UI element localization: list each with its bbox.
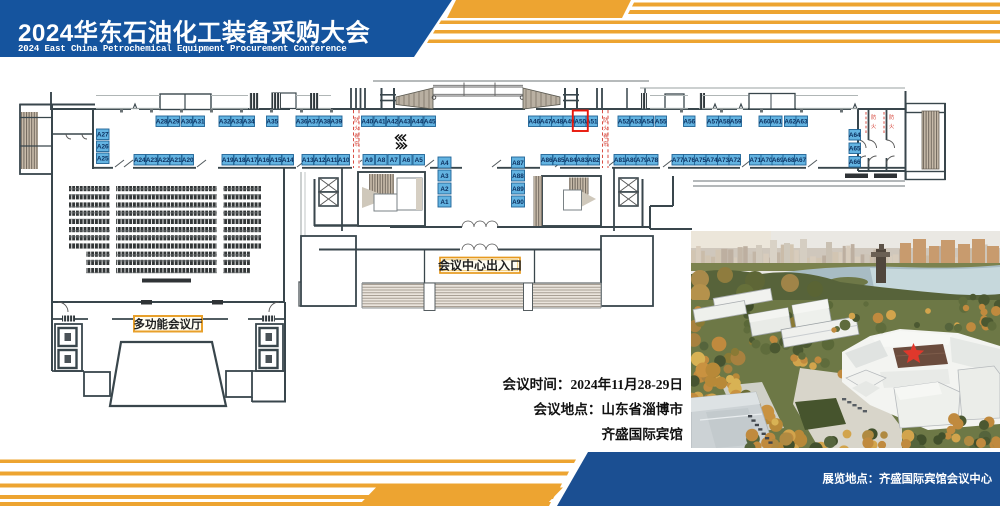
svg-text:A16: A16 [258,157,270,164]
svg-text:A48: A48 [551,119,563,126]
svg-text:A17: A17 [246,157,258,164]
svg-text:A25: A25 [97,156,109,163]
svg-text:A33: A33 [231,119,243,126]
svg-text:A1: A1 [440,199,449,206]
svg-text:A78: A78 [646,157,658,164]
svg-text:A62: A62 [784,119,796,126]
svg-text:会议中心出入口: 会议中心出入口 [438,258,522,273]
svg-text:A65: A65 [849,146,861,153]
svg-text:卷: 卷 [603,132,609,140]
svg-text:A72: A72 [729,157,741,164]
svg-text:A21: A21 [170,157,182,164]
svg-text:防: 防 [889,113,894,121]
svg-text:A12: A12 [314,157,326,164]
svg-text:A26: A26 [97,144,109,151]
svg-text:A60: A60 [759,119,771,126]
svg-text:多功能会议厅: 多功能会议厅 [134,317,203,331]
svg-text:A87: A87 [512,160,524,167]
svg-text:A90: A90 [512,199,524,206]
svg-text:A77: A77 [672,157,684,164]
svg-text:A54: A54 [642,119,654,126]
svg-text:火: 火 [603,126,609,132]
svg-text:A29: A29 [168,119,180,126]
svg-text:A8: A8 [377,157,386,164]
svg-text:A45: A45 [424,119,436,126]
svg-text:帘: 帘 [354,140,359,148]
svg-text:A64: A64 [849,132,861,139]
svg-text:防: 防 [603,116,609,124]
svg-text:展览地点：齐盛国际宾馆会议中心: 展览地点：齐盛国际宾馆会议中心 [822,472,993,486]
svg-text:A89: A89 [512,186,524,193]
svg-text:A9: A9 [365,157,374,164]
svg-text:A30: A30 [181,119,193,126]
svg-text:A22: A22 [158,157,170,164]
svg-text:A10: A10 [338,157,350,164]
svg-text:A34: A34 [243,119,255,126]
svg-text:防: 防 [871,113,876,121]
svg-text:A4: A4 [440,160,449,167]
svg-text:A27: A27 [97,132,109,139]
svg-text:会议地点：山东省淄博市: 会议地点：山东省淄博市 [533,401,683,417]
svg-text:A58: A58 [718,119,730,126]
svg-text:A73: A73 [717,157,729,164]
svg-text:A56: A56 [683,119,695,126]
svg-text:A35: A35 [266,119,278,126]
svg-text:帘: 帘 [603,140,608,148]
svg-text:A23: A23 [146,157,158,164]
svg-text:A40: A40 [361,119,373,126]
svg-text:A50: A50 [574,119,586,126]
svg-text:A44: A44 [411,119,423,126]
svg-text:A2: A2 [440,186,449,193]
svg-text:A63: A63 [796,119,808,126]
svg-text:A11: A11 [326,157,338,164]
svg-text:A31: A31 [193,119,205,126]
svg-text:A85: A85 [553,157,565,164]
svg-text:A18: A18 [234,157,246,164]
svg-text:A7: A7 [390,157,399,164]
svg-text:会议时间：2024年11月28-29日: 会议时间：2024年11月28-29日 [503,376,684,392]
svg-text:A55: A55 [655,119,667,126]
svg-text:A41: A41 [374,119,386,126]
svg-text:A5: A5 [415,157,424,164]
svg-text:防: 防 [354,116,360,124]
svg-text:A83: A83 [576,157,588,164]
svg-text:A84: A84 [565,157,577,164]
svg-text:A47: A47 [540,119,552,126]
svg-text:A28: A28 [156,119,168,126]
svg-text:A15: A15 [270,157,282,164]
svg-text:A3: A3 [440,173,449,180]
svg-text:A20: A20 [182,157,194,164]
svg-text:火: 火 [889,124,894,130]
svg-text:A36: A36 [296,119,308,126]
svg-text:A32: A32 [219,119,231,126]
svg-text:A81: A81 [614,157,626,164]
svg-text:A67: A67 [794,157,806,164]
svg-text:2024华东石油化工装备采购大会: 2024华东石油化工装备采购大会 [18,19,370,47]
svg-text:A53: A53 [630,119,642,126]
svg-text:A14: A14 [282,157,294,164]
svg-text:齐盛国际宾馆: 齐盛国际宾馆 [601,426,683,442]
svg-text:卷: 卷 [354,132,360,140]
svg-text:A13: A13 [302,157,314,164]
svg-text:2024 East China Petrochemical: 2024 East China Petrochemical Equipment … [18,44,347,54]
svg-text:A59: A59 [730,119,742,126]
svg-text:A74: A74 [706,157,718,164]
svg-text:A6: A6 [402,157,411,164]
svg-text:火: 火 [871,124,876,130]
svg-text:A52: A52 [618,119,630,126]
svg-text:A88: A88 [512,173,524,180]
svg-text:A46: A46 [528,119,540,126]
svg-text:A61: A61 [770,119,782,126]
svg-text:火: 火 [354,126,360,132]
svg-text:A38: A38 [319,119,331,126]
svg-text:A24: A24 [134,157,146,164]
svg-text:A37: A37 [307,119,319,126]
svg-text:A68: A68 [783,157,795,164]
svg-text:A82: A82 [588,157,600,164]
svg-text:A57: A57 [707,119,719,126]
svg-text:A42: A42 [386,119,398,126]
svg-text:A39: A39 [330,119,342,126]
svg-text:A43: A43 [399,119,411,126]
svg-text:A86: A86 [541,157,553,164]
svg-text:A19: A19 [222,157,234,164]
svg-text:A71: A71 [749,157,761,164]
svg-text:A66: A66 [849,159,861,166]
svg-text:A75: A75 [694,157,706,164]
